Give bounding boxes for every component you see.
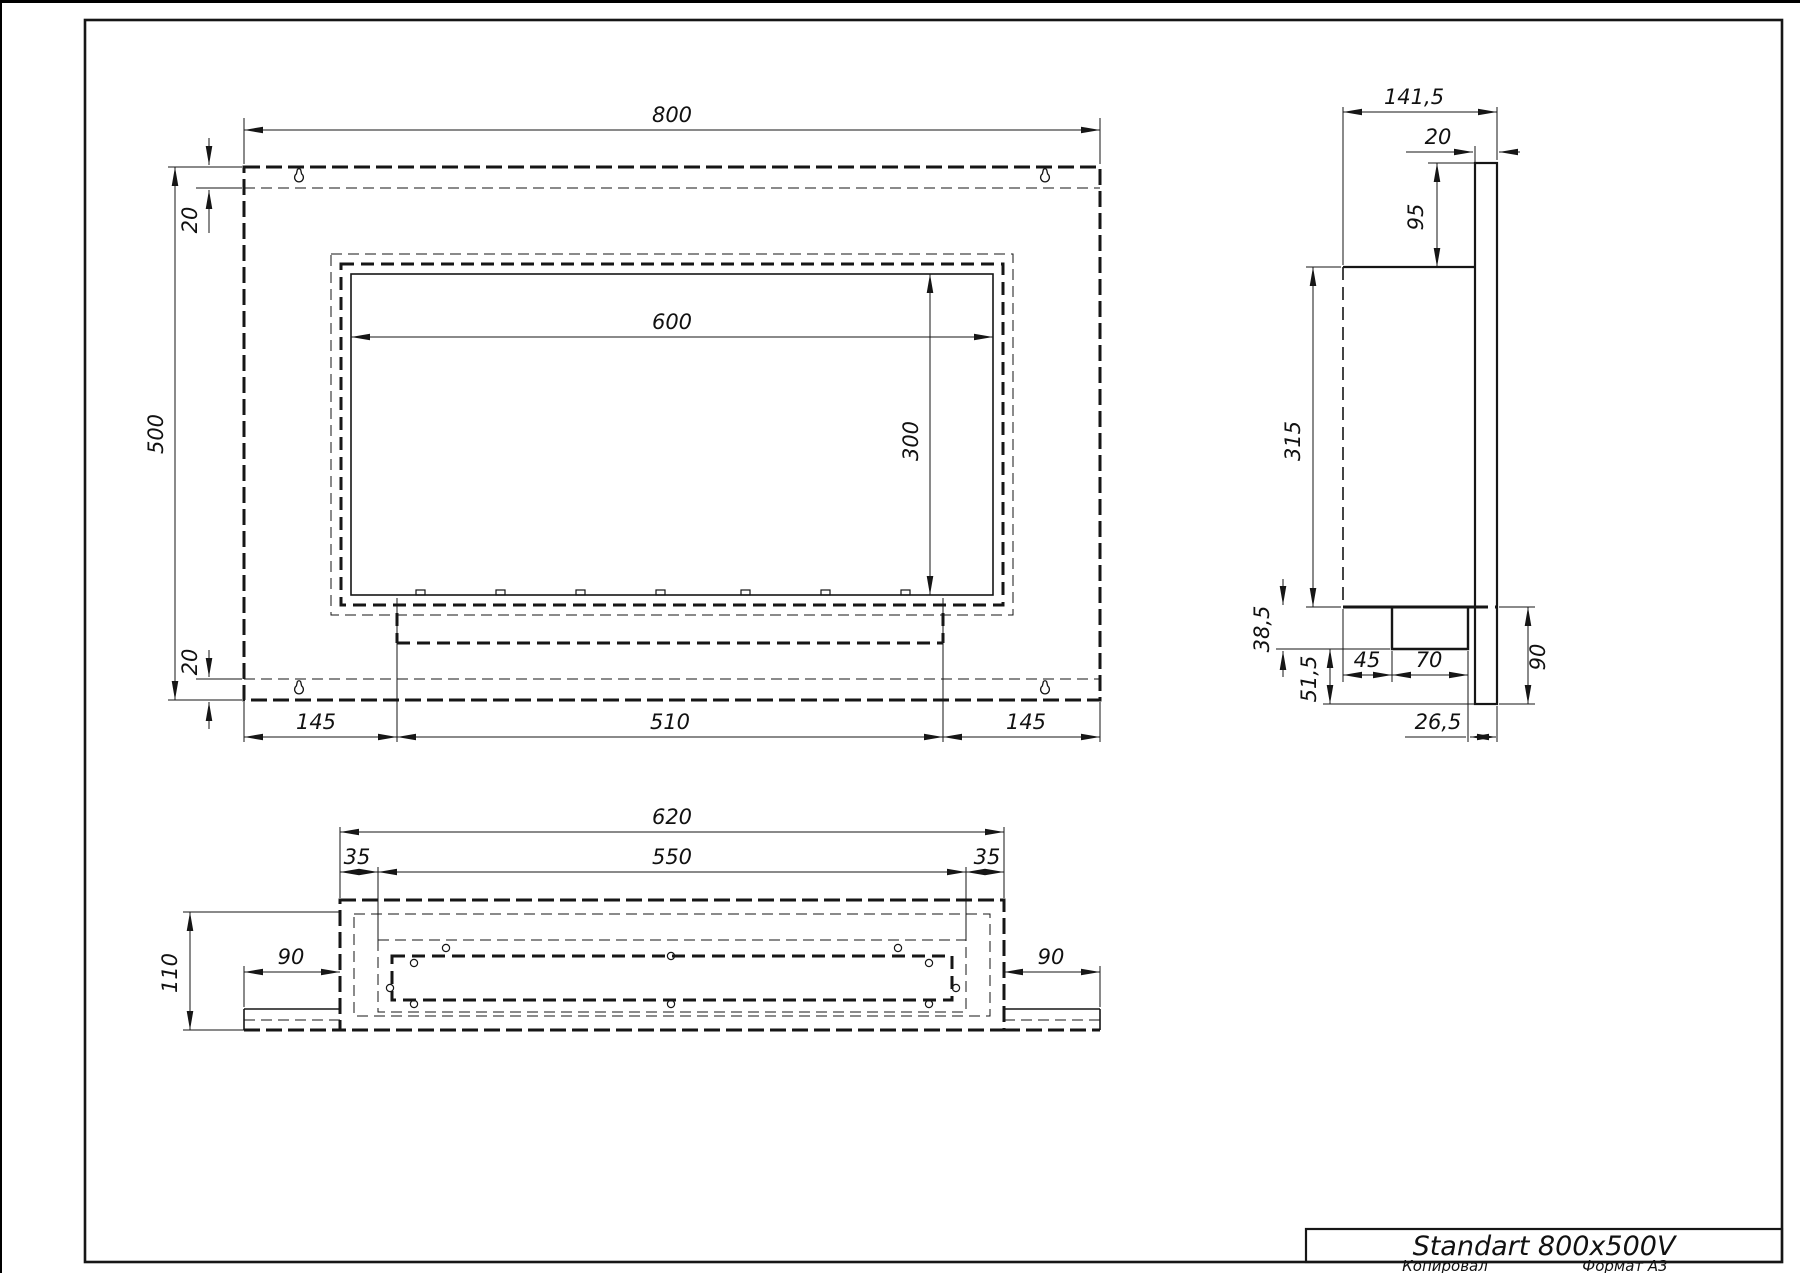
side-wall-plate [1475,163,1497,704]
footer-copied-label: Копировал [1402,1257,1488,1273]
side-view: 141,5 20 95 315 38,5 51,5 [1250,85,1550,742]
drawing-sheet: 800 500 20 20 600 300 [0,0,1800,1273]
dim-bottom-inset-left: 35 [344,845,371,869]
front-view: 800 500 20 20 600 300 [144,103,1100,742]
screen-edge-lines [0,0,1800,1273]
side-view-dimensions: 141,5 20 95 315 38,5 51,5 [1250,85,1550,742]
keyhole-icon [1041,681,1050,694]
keyhole-icon [295,169,304,182]
side-burner-box [1392,607,1468,649]
dim-side-burner-offset: 45 [1354,648,1381,672]
dim-front-bottom-inset: 20 [178,649,202,676]
title-block: Standart 800x500V Копировал Формат А3 [1306,1229,1782,1273]
dim-side-plate-extension: 90 [1526,644,1550,671]
dim-front-height: 500 [144,414,168,454]
dim-front-margin-left: 145 [296,710,336,734]
dim-bottom-flange-right: 90 [1038,945,1065,969]
dim-bottom-body-width: 620 [652,805,692,829]
keyhole-icon [1041,169,1050,182]
dim-side-bottom-gap: 51,5 [1297,656,1321,703]
dim-bottom-flange-left: 90 [278,945,305,969]
dim-side-top-gap: 95 [1404,204,1428,231]
footer-format-label: Формат А3 [1582,1257,1667,1273]
dim-front-top-inset: 20 [178,207,202,234]
dim-side-plate-thickness: 20 [1425,125,1452,149]
dim-side-body-height: 315 [1281,421,1305,461]
dim-side-burner-depth: 38,5 [1250,606,1274,653]
dim-side-rear-offset: 26,5 [1415,710,1462,734]
dim-side-burner-width: 70 [1416,648,1443,672]
dim-front-width: 800 [652,103,692,127]
keyhole-icon [295,681,304,694]
bottom-body [340,900,1004,1030]
dim-bottom-opening-width: 550 [652,845,692,869]
bottom-view-dimensions: 620 35 550 35 110 90 90 [158,805,1100,1030]
dim-bottom-depth: 110 [158,953,182,993]
bottom-view: 620 35 550 35 110 90 90 [158,805,1100,1030]
front-outer-panel [244,167,1100,700]
dim-front-burner-width: 510 [650,710,690,734]
drawing-canvas: 800 500 20 20 600 300 [0,0,1800,1273]
dim-front-margin-right: 145 [1006,710,1046,734]
dim-front-opening-width: 600 [652,310,692,334]
bottom-burner-tray [392,956,952,1000]
screw-holes [386,944,959,1007]
dim-side-depth: 141,5 [1384,85,1444,109]
sheet-frame [85,20,1782,1262]
dim-front-opening-height: 300 [899,421,923,461]
dim-bottom-inset-right: 35 [974,845,1001,869]
front-view-dimensions: 800 500 20 20 600 300 [144,103,1100,742]
